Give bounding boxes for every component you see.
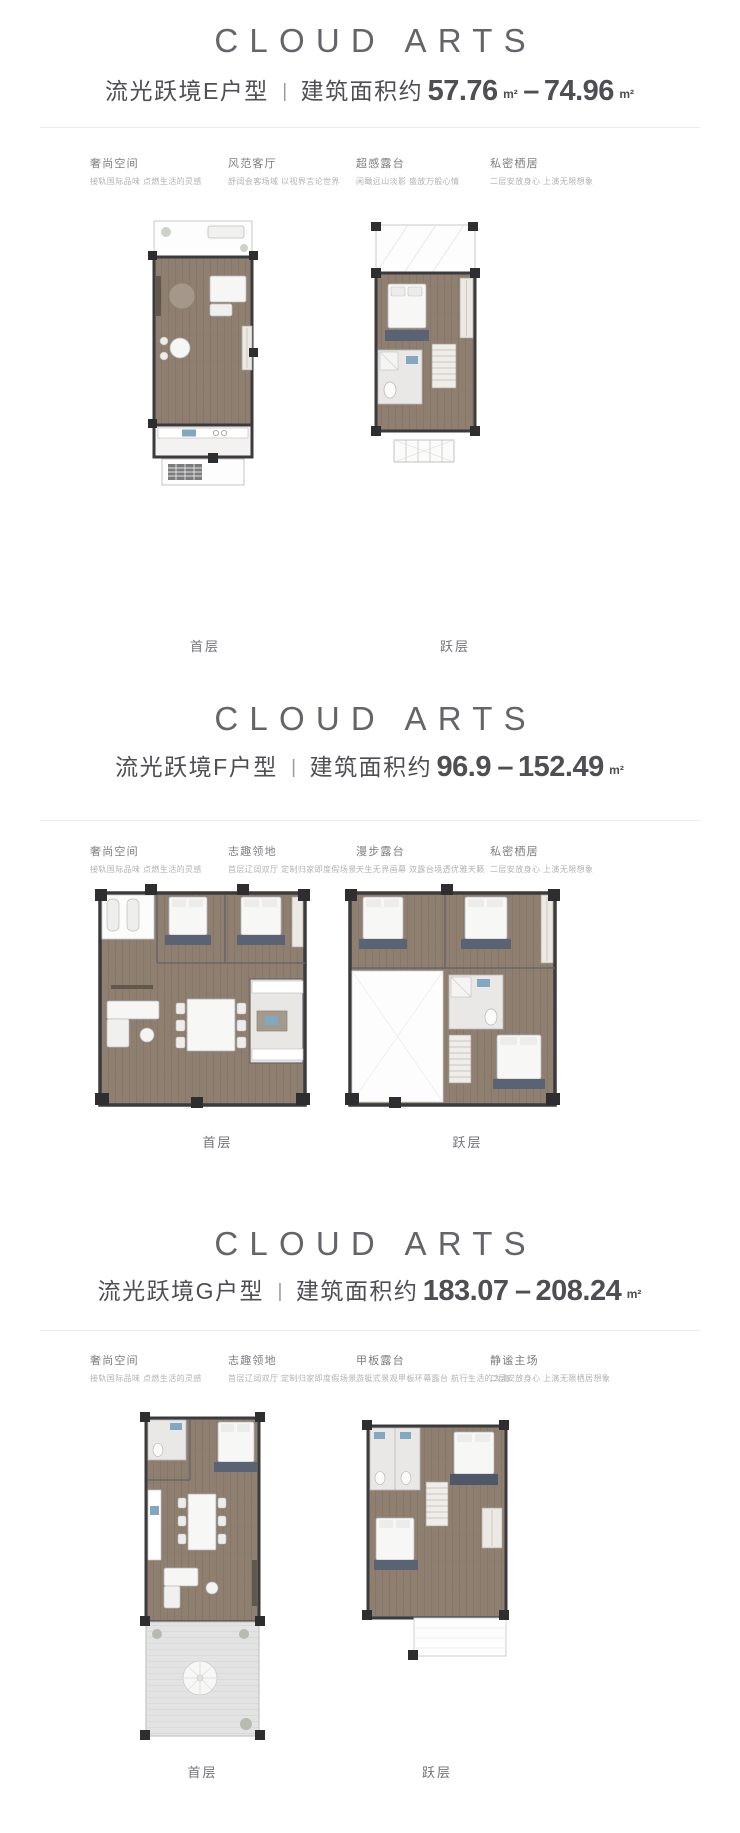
feature-item: 志趣领地 首层辽阔双厅 定制归家即度假场景 (228, 1352, 357, 1384)
area-range-dash: – (515, 1275, 531, 1307)
feature-title: 奢尚空间 (90, 1352, 202, 1368)
feature-desc: 接轨国际品味 点燃生活的灵感 (90, 176, 202, 187)
area-max-value: 208.24 (536, 1275, 622, 1307)
area-max-unit: m² (627, 1287, 642, 1301)
feature-desc: 二层安放身心 上演无限想象 (490, 176, 593, 187)
area-min-unit: m² (503, 87, 518, 101)
area-prefix: 建筑面积约 (301, 78, 424, 104)
title-separator: | (282, 81, 287, 102)
feature-item: 风范客厅 舒阔会客场域 以视界言论世界 (228, 155, 340, 187)
floorplan-e-loft-floor (368, 222, 483, 480)
brand-logo: CLOUD ARTS (0, 1225, 740, 1263)
feature-item: 奢尚空间 接轨国际品味 点燃生活的灵感 (90, 843, 202, 875)
floor-label-loft: 跃层 (362, 1762, 512, 1781)
feature-desc: 天生无界画幕 双露台境透优雅天籁 (356, 864, 485, 875)
unit-type-name: 流光跃境F户型 (115, 754, 278, 780)
feature-item: 超感露台 闲瞰远山淡影 盛放万般心情 (356, 155, 459, 187)
area-prefix: 建筑面积约 (296, 1278, 419, 1304)
feature-title: 漫步露台 (356, 843, 485, 859)
feature-item: 私密栖居 二层安放身心 上演无限想象 (490, 843, 593, 875)
area-range-dash: – (523, 75, 539, 107)
feature-item: 甲板露台 游艇式景观甲板环幕露台 航行生活的大海 (356, 1352, 510, 1384)
floorplan-f-loft-floor-drawing (345, 883, 560, 1115)
floor-label-first: 首层 (150, 636, 260, 655)
area-min-value: 183.07 (423, 1275, 509, 1307)
floorplan-g-first-floor-drawing (140, 1410, 265, 1742)
feature-desc: 接轨国际品味 点燃生活的灵感 (90, 864, 202, 875)
area-prefix: 建筑面积约 (310, 754, 433, 780)
title-separator: | (291, 757, 296, 778)
feature-title: 奢尚空间 (90, 155, 202, 171)
section-f-title: 流光跃境F户型 | 建筑面积约 96.9 – 152.49 m² (0, 748, 740, 784)
feature-item: 静谧主场 二层安放身心 上演无限栖居想象 (490, 1352, 610, 1384)
floorplan-e-first-floor (148, 218, 258, 490)
section-g-title: 流光跃境G户型 | 建筑面积约 183.07 – 208.24 m² (0, 1272, 740, 1308)
feature-title: 私密栖居 (490, 155, 593, 171)
feature-desc: 二层安放身心 上演无限栖居想象 (490, 1373, 610, 1384)
area-max-value: 74.96 (544, 75, 614, 107)
feature-title: 志趣领地 (228, 1352, 357, 1368)
feature-item: 志趣领地 首层辽阔双厅 定制归家即度假场景 (228, 843, 357, 875)
floor-label-first: 首层 (110, 1132, 325, 1151)
area-min-value: 57.76 (428, 75, 498, 107)
feature-desc: 闲瞰远山淡影 盛放万般心情 (356, 176, 459, 187)
unit-type-name: 流光跃境E户型 (105, 78, 269, 104)
feature-title: 甲板露台 (356, 1352, 510, 1368)
floorplan-g-loft-floor (362, 1418, 512, 1665)
feature-title: 志趣领地 (228, 843, 357, 859)
feature-desc: 舒阔会客场域 以视界言论世界 (228, 176, 340, 187)
area-max-value: 152.49 (518, 751, 604, 783)
section-divider (40, 1330, 700, 1331)
floorplan-f-loft-floor (345, 883, 560, 1115)
area-min-value: 96.9 (437, 751, 491, 783)
area-range-dash: – (497, 751, 513, 783)
floorplan-g-first-floor (140, 1410, 265, 1742)
section-e-title: 流光跃境E户型 | 建筑面积约 57.76 m² – 74.96 m² (0, 72, 740, 108)
feature-desc: 游艇式景观甲板环幕露台 航行生活的大海 (356, 1373, 510, 1384)
feature-desc: 接轨国际品味 点燃生活的灵感 (90, 1373, 202, 1384)
section-divider (40, 820, 700, 821)
feature-item: 奢尚空间 接轨国际品味 点燃生活的灵感 (90, 155, 202, 187)
brochure-page: CLOUD ARTS 流光跃境E户型 | 建筑面积约 57.76 m² – 74… (0, 0, 740, 1833)
feature-desc: 二层安放身心 上演无限想象 (490, 864, 593, 875)
feature-item: 私密栖居 二层安放身心 上演无限想象 (490, 155, 593, 187)
feature-title: 静谧主场 (490, 1352, 610, 1368)
floorplan-e-first-floor-drawing (148, 218, 258, 490)
floorplan-e-loft-floor-drawing (368, 222, 483, 480)
brand-logo: CLOUD ARTS (0, 700, 740, 738)
feature-title: 风范客厅 (228, 155, 340, 171)
brand-logo: CLOUD ARTS (0, 22, 740, 60)
feature-desc: 首层辽阔双厅 定制归家即度假场景 (228, 864, 357, 875)
feature-item: 奢尚空间 接轨国际品味 点燃生活的灵感 (90, 1352, 202, 1384)
feature-item: 漫步露台 天生无界画幕 双露台境透优雅天籁 (356, 843, 485, 875)
floorplan-f-first-floor (95, 883, 310, 1115)
feature-title: 奢尚空间 (90, 843, 202, 859)
floorplan-f-first-floor-drawing (95, 883, 310, 1115)
feature-desc: 首层辽阔双厅 定制归家即度假场景 (228, 1373, 357, 1384)
floorplan-g-loft-floor-drawing (362, 1418, 512, 1665)
section-divider (40, 127, 700, 128)
area-max-unit: m² (609, 763, 624, 777)
floor-label-loft: 跃层 (360, 1132, 575, 1151)
title-separator: | (277, 1281, 282, 1302)
feature-title: 超感露台 (356, 155, 459, 171)
area-max-unit: m² (619, 87, 634, 101)
feature-title: 私密栖居 (490, 843, 593, 859)
floor-label-loft: 跃层 (400, 636, 510, 655)
unit-type-name: 流光跃境G户型 (98, 1278, 264, 1304)
floor-label-first: 首层 (140, 1762, 265, 1781)
